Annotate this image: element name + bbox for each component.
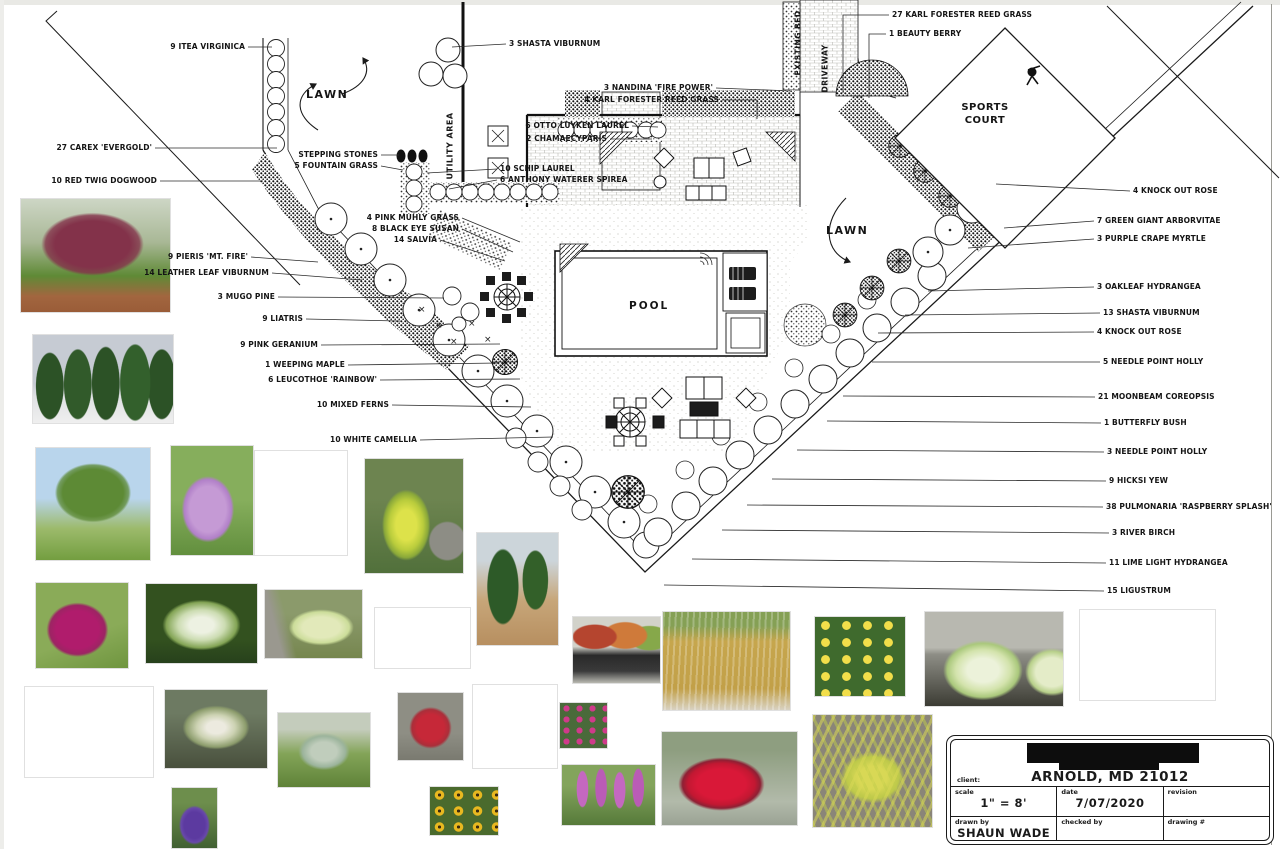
- date-cell: date 7/07/2020: [1057, 787, 1163, 816]
- date-field-label: date: [1061, 788, 1078, 796]
- lawn-label-left: LAWN: [306, 88, 348, 101]
- pool-label: POOL: [629, 300, 669, 312]
- scale-field-label: scale: [955, 788, 974, 796]
- title-block-row-scale-date-revision: scale 1" = 8' date 7/07/2020 revision: [951, 787, 1269, 817]
- svg-text:×: ×: [435, 321, 443, 331]
- svg-text:×: ×: [468, 319, 476, 329]
- drawn-by-field-label: drawn by: [955, 818, 989, 826]
- scale-cell: scale 1" = 8': [951, 787, 1057, 816]
- title-block-client-row: client: ARNOLD, MD 21012: [951, 740, 1269, 787]
- svg-text:×: ×: [484, 335, 492, 345]
- sports-court-label: SPORTS COURT: [953, 102, 1017, 127]
- drawing-number-field-label: drawing #: [1168, 818, 1205, 826]
- landscape-plan-sheet: { "plan": { "area_labels": { "lawn_left"…: [0, 0, 1280, 849]
- title-block: client: ARNOLD, MD 21012 scale 1" = 8' d…: [946, 735, 1274, 845]
- utility-area-label: UTILITY AREA: [446, 90, 455, 180]
- drawn-by-cell: drawn by SHAUN WADE: [951, 817, 1057, 841]
- existing-bed-label: EXISTING BED: [794, 6, 803, 76]
- checked-by-cell: checked by: [1057, 817, 1163, 841]
- drawn-by-value: SHAUN WADE: [951, 826, 1056, 840]
- svg-text:×: ×: [450, 337, 458, 347]
- drawing-number-cell: drawing #: [1164, 817, 1269, 841]
- driveway-label: DRIVEWAY: [821, 33, 830, 93]
- revision-cell: revision: [1164, 787, 1269, 816]
- title-block-inner-border: client: ARNOLD, MD 21012 scale 1" = 8' d…: [950, 739, 1270, 841]
- checked-by-field-label: checked by: [1061, 818, 1102, 826]
- svg-text:×: ×: [418, 305, 426, 315]
- lawn-label-right: LAWN: [826, 224, 868, 237]
- client-city-value: ARNOLD, MD 21012: [951, 769, 1269, 785]
- revision-field-label: revision: [1168, 788, 1197, 796]
- date-value: 7/07/2020: [1057, 796, 1162, 810]
- scale-value: 1" = 8': [951, 796, 1056, 810]
- redacted-client-name-bar: [1027, 743, 1199, 763]
- site-plan-drawing: ××× ×××: [0, 0, 1280, 849]
- title-block-row-drawn-checked-drawing: drawn by SHAUN WADE checked by drawing #: [951, 817, 1269, 841]
